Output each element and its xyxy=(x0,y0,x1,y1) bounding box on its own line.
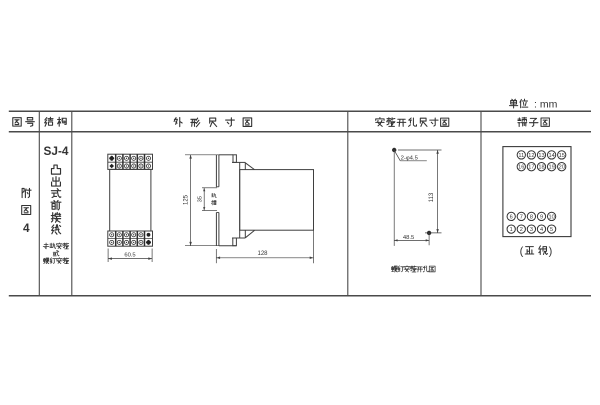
svg-text:113: 113 xyxy=(429,192,435,202)
svg-text:16: 16 xyxy=(518,165,524,171)
svg-text:11: 11 xyxy=(518,153,524,159)
svg-text:20: 20 xyxy=(559,165,565,171)
svg-text:60.5: 60.5 xyxy=(124,252,135,258)
svg-text:125: 125 xyxy=(183,194,189,205)
svg-text:14: 14 xyxy=(548,153,554,159)
svg-text:4: 4 xyxy=(540,227,543,233)
svg-text:): ) xyxy=(549,246,553,258)
svg-text:12: 12 xyxy=(528,153,534,159)
svg-text:7: 7 xyxy=(520,214,523,220)
svg-text:13: 13 xyxy=(538,153,544,159)
svg-text:18: 18 xyxy=(538,165,544,171)
svg-text:8: 8 xyxy=(530,214,533,220)
svg-text:2: 2 xyxy=(520,227,523,233)
svg-text:3: 3 xyxy=(530,227,533,233)
svg-text:17: 17 xyxy=(528,165,534,171)
svg-text:9: 9 xyxy=(540,214,543,220)
svg-text:19: 19 xyxy=(548,165,554,171)
svg-text:(: ( xyxy=(520,246,524,258)
svg-text:SJ-4: SJ-4 xyxy=(44,144,69,158)
svg-text:128: 128 xyxy=(257,251,268,257)
svg-text:5: 5 xyxy=(550,227,553,233)
svg-text:48.5: 48.5 xyxy=(403,235,415,241)
svg-text:15: 15 xyxy=(559,153,565,159)
svg-text:4: 4 xyxy=(23,221,30,235)
svg-text:2-φ4.5: 2-φ4.5 xyxy=(401,156,419,162)
svg-text:10: 10 xyxy=(548,214,554,220)
svg-text:35: 35 xyxy=(198,196,204,202)
svg-text:6: 6 xyxy=(510,214,513,220)
svg-text:1: 1 xyxy=(510,227,513,233)
svg-text:: mm: : mm xyxy=(534,99,558,111)
